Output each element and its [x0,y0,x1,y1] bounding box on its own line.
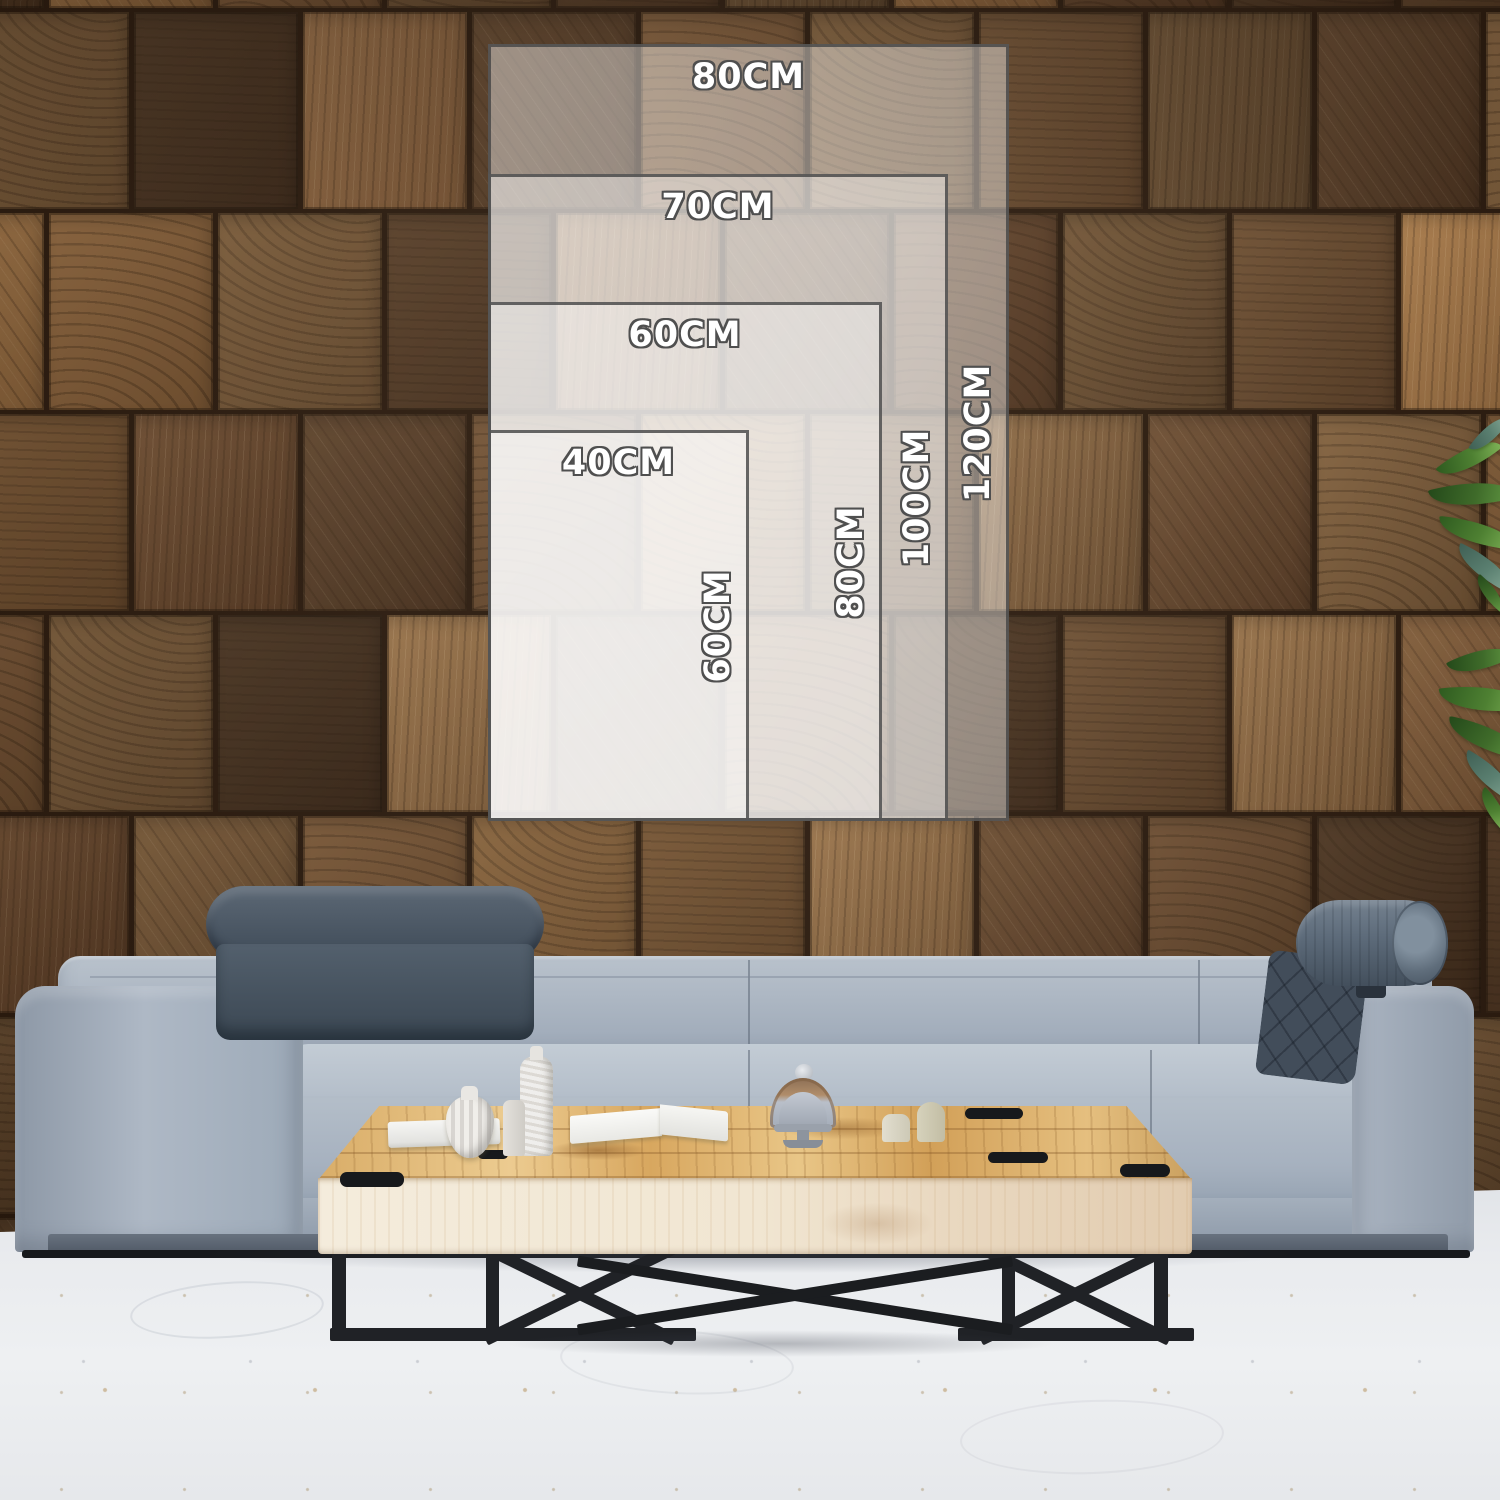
plant-leaf [1437,516,1500,550]
plant-leaf [1428,470,1500,517]
plant-leaf [1472,787,1500,831]
plant-leaf [1456,750,1500,803]
plant [0,0,1500,1500]
plant-leaf [1439,680,1500,719]
product-size-guide-image: 80CM 120CM 70CM 100CM 60CM 80CM 40CM 60C… [0,0,1500,1500]
plant-leaf [1446,635,1500,685]
